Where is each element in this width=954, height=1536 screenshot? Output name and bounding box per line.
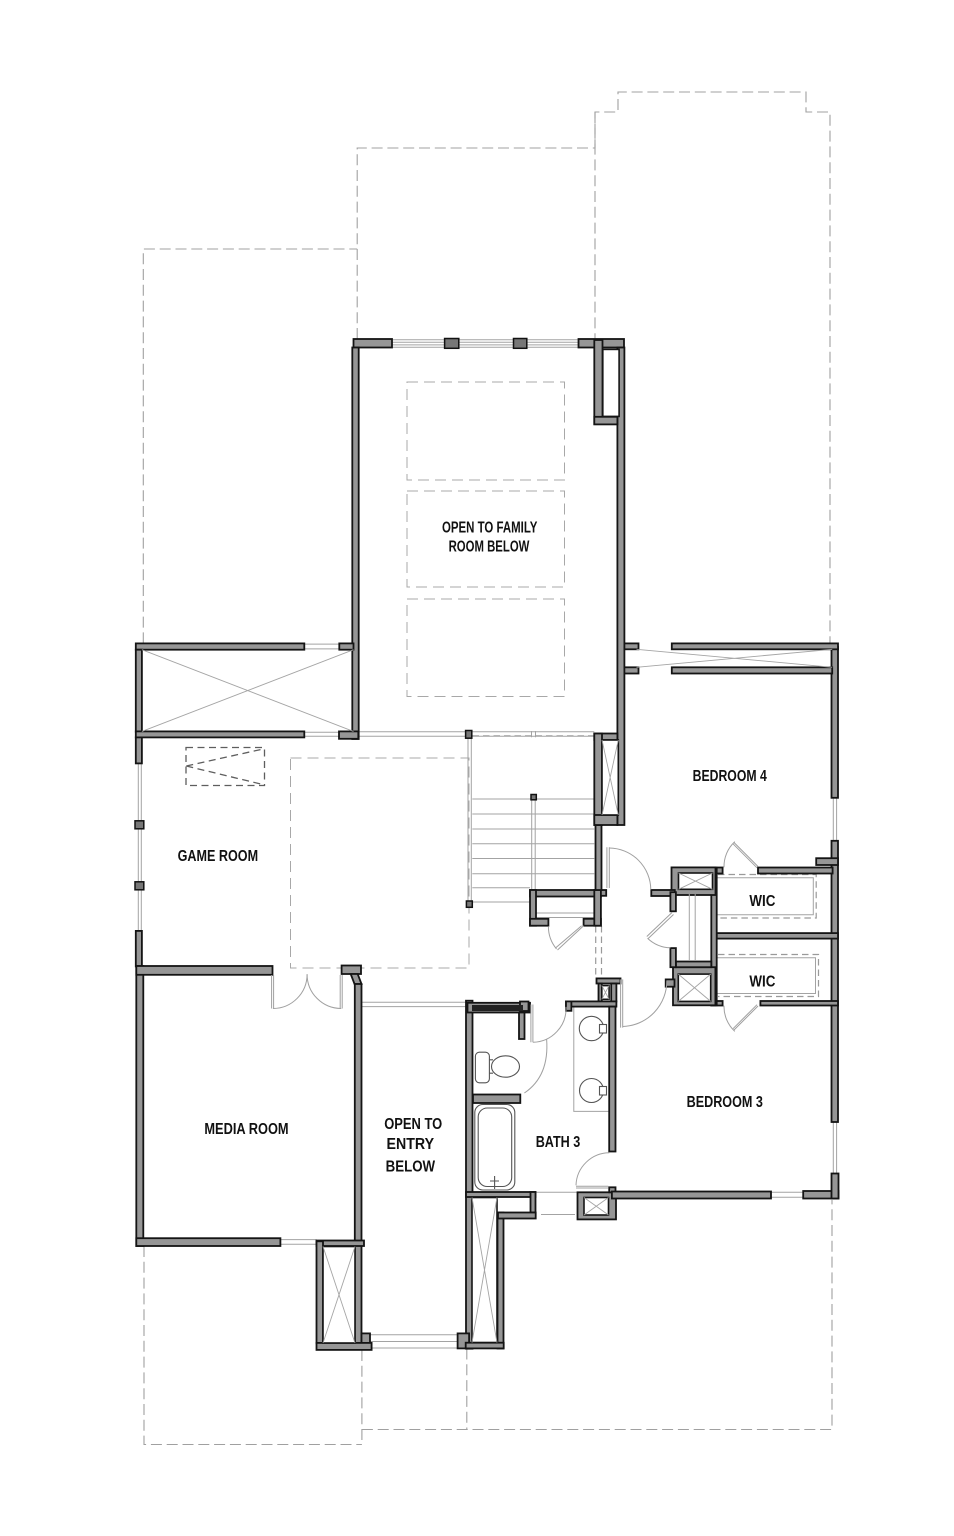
svg-text:BEDROOM 3: BEDROOM 3	[687, 1094, 763, 1111]
svg-text:WIC: WIC	[749, 973, 775, 990]
svg-text:GAME ROOM: GAME ROOM	[178, 848, 259, 865]
svg-text:OPEN TO FAMILY: OPEN TO FAMILY	[442, 519, 538, 536]
svg-text:BELOW: BELOW	[386, 1159, 436, 1176]
svg-text:BEDROOM 4: BEDROOM 4	[693, 768, 767, 785]
svg-text:ENTRY: ENTRY	[387, 1136, 435, 1153]
svg-text:MEDIA ROOM: MEDIA ROOM	[204, 1121, 288, 1138]
svg-text:WIC: WIC	[749, 893, 775, 910]
svg-text:BATH 3: BATH 3	[536, 1134, 581, 1151]
svg-text:ROOM BELOW: ROOM BELOW	[449, 538, 530, 555]
svg-text:OPEN TO: OPEN TO	[384, 1116, 442, 1133]
